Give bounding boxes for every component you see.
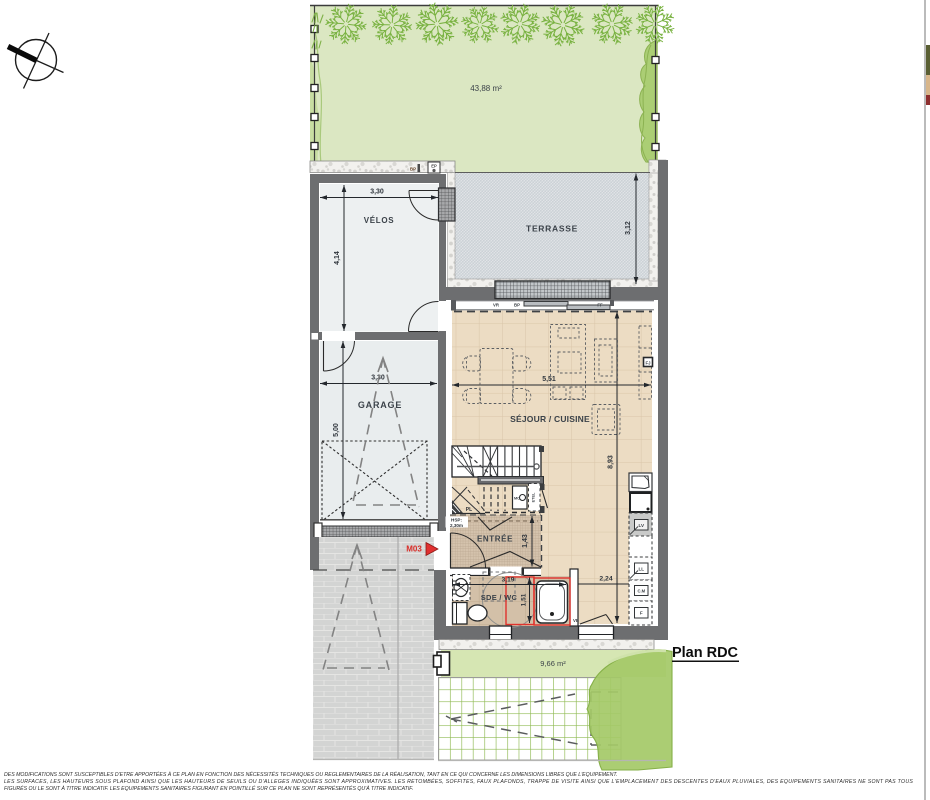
svg-text:VR: VR xyxy=(493,303,500,308)
svg-text:2,24: 2,24 xyxy=(599,576,612,583)
svg-text:5,00: 5,00 xyxy=(333,423,340,437)
svg-text:ETEL: ETEL xyxy=(532,492,536,502)
svg-text:1,51: 1,51 xyxy=(521,593,528,606)
svg-text:3,12: 3,12 xyxy=(625,221,632,235)
svg-text:ENTRÉE: ENTRÉE xyxy=(477,535,513,544)
svg-text:M03: M03 xyxy=(406,545,422,554)
svg-text:3,19: 3,19 xyxy=(502,577,515,584)
svg-text:PL: PL xyxy=(466,507,472,513)
svg-text:3,30: 3,30 xyxy=(370,189,384,196)
svg-text:2,30m: 2,30m xyxy=(450,523,463,528)
svg-text:5,51: 5,51 xyxy=(542,376,556,383)
svg-text:SDE / WC: SDE / WC xyxy=(481,593,518,602)
svg-text:VÉLOS: VÉLOS xyxy=(364,216,395,225)
svg-text:DES MODIFICATIONS SONT SUSCEPT: DES MODIFICATIONS SONT SUSCEPTIBLES D'ET… xyxy=(4,771,617,778)
svg-text:MO: MO xyxy=(514,497,520,501)
svg-text:8,93: 8,93 xyxy=(608,455,615,469)
svg-text:F: F xyxy=(640,611,643,616)
svg-text:FF: FF xyxy=(597,303,603,308)
svg-text:TERRASSE: TERRASSE xyxy=(526,224,578,234)
svg-text:FJ: FJ xyxy=(645,361,651,366)
svg-text:C.M: C.M xyxy=(637,589,645,594)
svg-text:BP: BP xyxy=(514,303,520,308)
svg-text:FIGURÉS OU LE SONT À TITRE IND: FIGURÉS OU LE SONT À TITRE INDICATIF. LE… xyxy=(4,785,413,792)
svg-text:SÉJOUR / CUISINE: SÉJOUR / CUISINE xyxy=(510,414,590,424)
svg-text:HSP:: HSP: xyxy=(451,518,462,523)
svg-text:1,43: 1,43 xyxy=(522,534,529,548)
svg-text:EP: EP xyxy=(431,164,437,169)
svg-text:BP: BP xyxy=(410,167,416,172)
svg-text:4,14: 4,14 xyxy=(334,251,341,265)
svg-text:LV: LV xyxy=(639,523,645,528)
svg-text:VB: VB xyxy=(573,618,579,623)
svg-text:9,66 m²: 9,66 m² xyxy=(540,659,566,668)
svg-text:LL: LL xyxy=(638,567,644,572)
svg-text:LES SURFACES, LES HAUTEURS SOU: LES SURFACES, LES HAUTEURS SOUS PLAFOND … xyxy=(4,778,913,785)
svg-text:43,88 m²: 43,88 m² xyxy=(470,84,502,93)
svg-text:Plan RDC: Plan RDC xyxy=(672,645,739,661)
